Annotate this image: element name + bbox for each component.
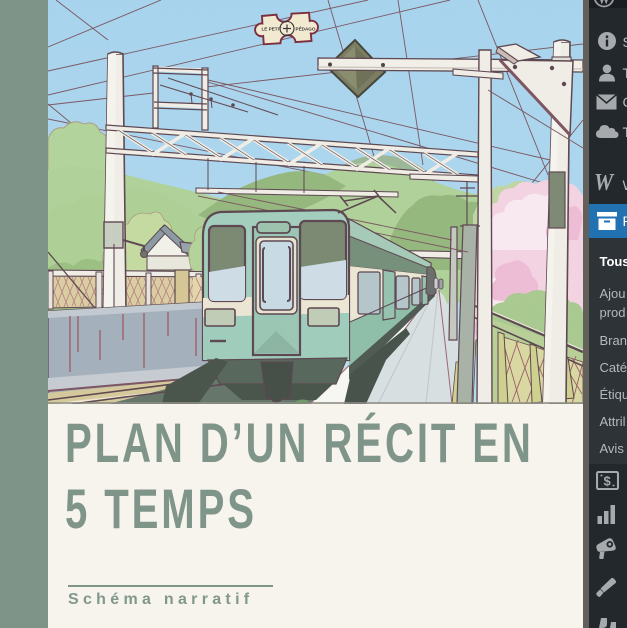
svg-text:$: $ [603,473,611,488]
